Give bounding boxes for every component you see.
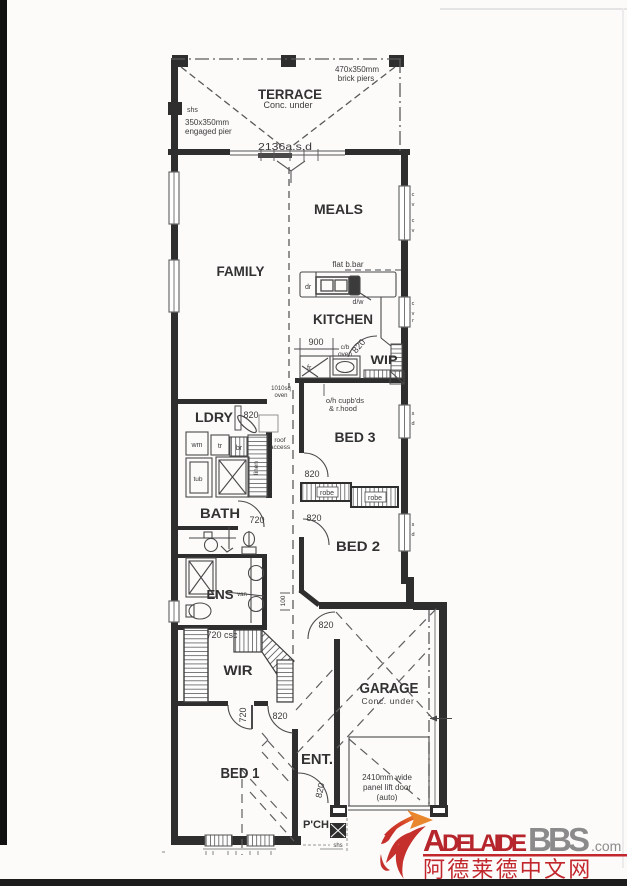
svg-text:engaged pier: engaged pier xyxy=(185,127,232,136)
svg-text:s: s xyxy=(412,522,415,528)
svg-text:.com: .com xyxy=(591,838,621,854)
svg-text:fr: fr xyxy=(307,365,312,372)
svg-text:LDRY: LDRY xyxy=(195,409,234,425)
svg-text:tr: tr xyxy=(218,443,223,450)
svg-text:WIP: WIP xyxy=(371,353,398,367)
svg-text:720: 720 xyxy=(238,707,248,722)
svg-text:oven: oven xyxy=(274,393,287,399)
svg-text:FAMILY: FAMILY xyxy=(217,263,266,279)
svg-text:470x350mm: 470x350mm xyxy=(335,65,379,74)
svg-text:GARAGE: GARAGE xyxy=(360,681,419,697)
svg-text:c: c xyxy=(412,218,415,224)
svg-text:(auto): (auto) xyxy=(377,793,398,802)
svg-text:c/b: c/b xyxy=(341,344,350,351)
svg-text:& r.hood: & r.hood xyxy=(329,404,357,413)
svg-text:BED 2: BED 2 xyxy=(336,538,380,554)
svg-text:BED 3: BED 3 xyxy=(335,429,376,445)
svg-text:shs: shs xyxy=(333,843,342,849)
svg-text:panel lift door: panel lift door xyxy=(363,783,411,792)
svg-text:820: 820 xyxy=(243,410,258,420)
svg-text:MEALS: MEALS xyxy=(314,201,363,217)
svg-text:720 csc: 720 csc xyxy=(206,630,238,640)
svg-text:Conc. under: Conc. under xyxy=(362,696,415,706)
svg-text:ENT.: ENT. xyxy=(301,751,333,768)
svg-text:br: br xyxy=(236,445,243,452)
svg-text:KITCHEN: KITCHEN xyxy=(313,312,373,327)
svg-text:linen: linen xyxy=(253,461,260,475)
svg-text:Conc. under: Conc. under xyxy=(263,100,312,110)
svg-text:wm: wm xyxy=(191,442,203,449)
svg-text:P'CH: P'CH xyxy=(303,819,329,831)
svg-text:WIR: WIR xyxy=(224,662,253,678)
svg-text:720: 720 xyxy=(249,515,264,525)
svg-text:access: access xyxy=(270,444,291,451)
svg-text:flat b.bar: flat b.bar xyxy=(332,260,363,269)
svg-text:820: 820 xyxy=(272,711,287,721)
svg-text:d/w: d/w xyxy=(353,299,365,306)
svg-text:900: 900 xyxy=(308,337,323,347)
svg-text:roof: roof xyxy=(274,437,285,444)
svg-text:v: v xyxy=(412,311,415,317)
svg-text:BED 1: BED 1 xyxy=(221,765,260,782)
svg-text:brick piers: brick piers xyxy=(338,74,374,83)
svg-text:820: 820 xyxy=(306,513,321,523)
svg-text:s: s xyxy=(412,411,415,417)
svg-text:dr: dr xyxy=(305,284,312,291)
svg-text:shs: shs xyxy=(187,107,198,114)
svg-text:v: v xyxy=(412,202,415,208)
svg-text:v: v xyxy=(412,228,415,234)
svg-text:1010sq: 1010sq xyxy=(271,386,291,392)
svg-text:robe: robe xyxy=(320,490,334,497)
svg-text:ENS: ENS xyxy=(207,588,234,602)
svg-text:robe: robe xyxy=(368,495,382,502)
svg-text:c: c xyxy=(412,301,415,307)
svg-text:350x350mm: 350x350mm xyxy=(185,118,229,127)
svg-text:2136a.s.d: 2136a.s.d xyxy=(258,142,312,153)
svg-text:d: d xyxy=(411,532,414,538)
svg-text:100: 100 xyxy=(280,595,287,606)
svg-text:BBS: BBS xyxy=(528,821,590,858)
svg-text:BATH: BATH xyxy=(200,505,240,521)
svg-text:820: 820 xyxy=(318,620,333,630)
svg-text:oven: oven xyxy=(338,351,352,358)
svg-text:r: r xyxy=(412,318,414,324)
svg-text:c: c xyxy=(412,192,415,198)
svg-text:tub: tub xyxy=(193,476,202,483)
svg-text:820: 820 xyxy=(304,469,319,479)
svg-text:2410mm wide: 2410mm wide xyxy=(362,773,412,782)
svg-text:van: van xyxy=(237,592,247,598)
svg-text:阿德莱德中文网: 阿德莱德中文网 xyxy=(423,857,592,882)
svg-text:d: d xyxy=(411,421,414,427)
